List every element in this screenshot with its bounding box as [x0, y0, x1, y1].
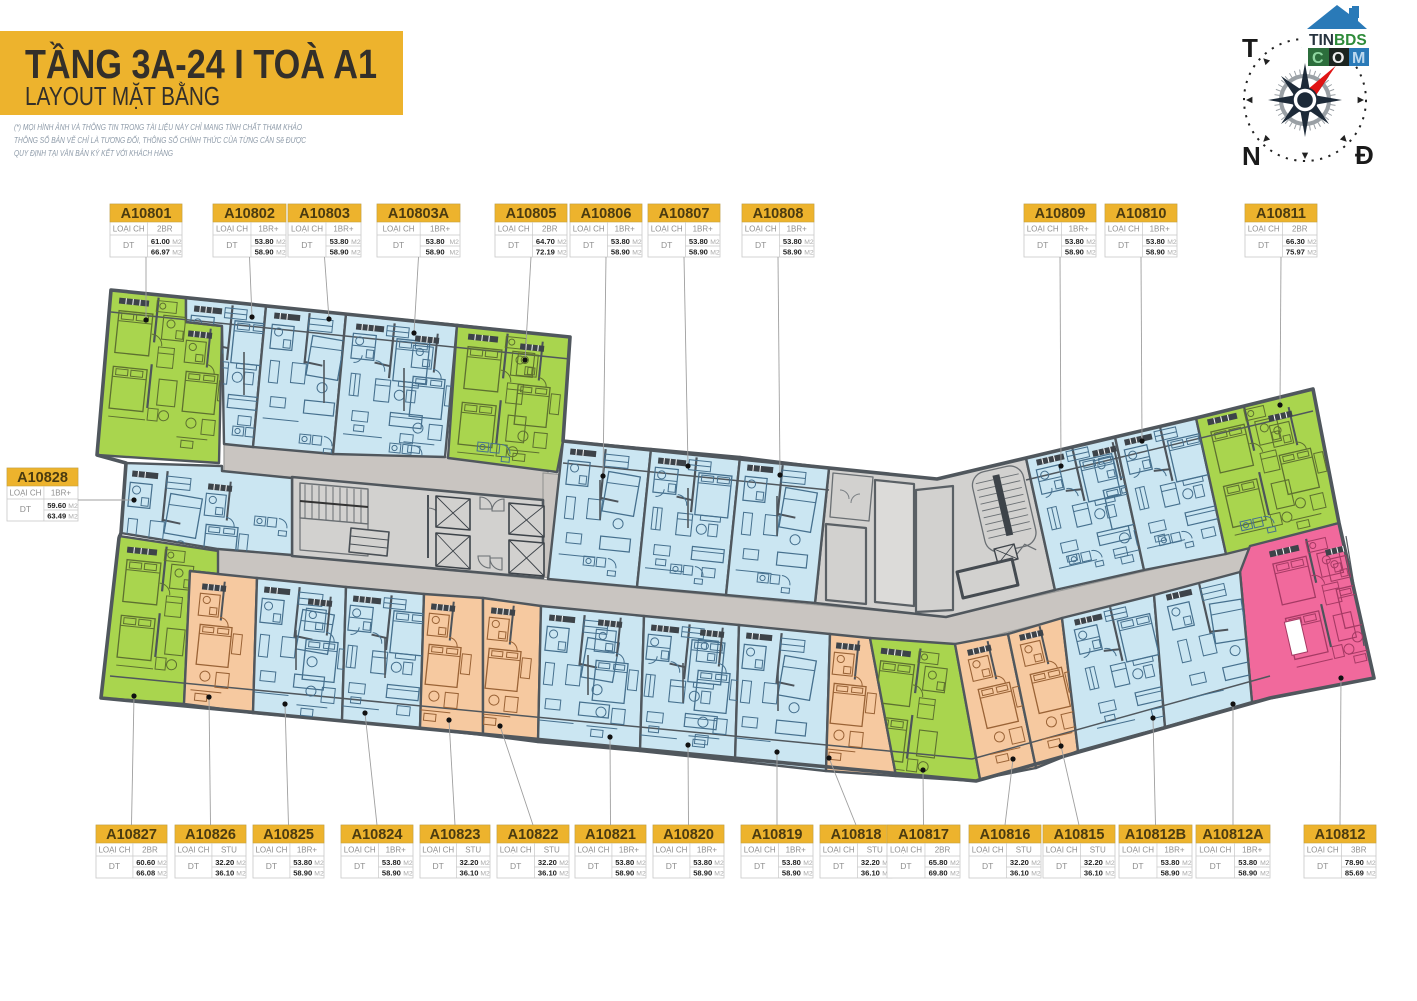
- svg-text:A10812: A10812: [1315, 827, 1366, 843]
- svg-text:53.80: 53.80: [1146, 237, 1165, 246]
- svg-text:64.70: 64.70: [536, 237, 555, 246]
- svg-text:DT: DT: [301, 240, 312, 250]
- svg-text:M2: M2: [632, 250, 642, 257]
- svg-text:32.20: 32.20: [1010, 858, 1029, 867]
- svg-text:DT: DT: [1056, 861, 1067, 871]
- svg-text:LOẠI CH: LOẠI CH: [500, 846, 532, 855]
- svg-text:58.90: 58.90: [330, 248, 349, 257]
- svg-text:1BR+: 1BR+: [258, 225, 279, 234]
- svg-text:M2: M2: [68, 503, 78, 510]
- svg-text:LOẠI CH: LOẠI CH: [113, 225, 145, 234]
- svg-text:53.80: 53.80: [689, 237, 708, 246]
- svg-text:M2: M2: [68, 514, 78, 521]
- svg-text:72.19: 72.19: [536, 248, 555, 257]
- svg-text:M2: M2: [559, 871, 569, 878]
- svg-text:75.97: 75.97: [1286, 248, 1305, 257]
- svg-text:32.20: 32.20: [1084, 858, 1103, 867]
- svg-text:M2: M2: [314, 860, 324, 867]
- svg-text:A10822: A10822: [508, 827, 559, 843]
- svg-text:63.49: 63.49: [47, 512, 66, 521]
- svg-text:M2: M2: [632, 239, 642, 246]
- svg-text:65.80: 65.80: [929, 858, 948, 867]
- svg-text:M2: M2: [1182, 860, 1192, 867]
- svg-text:LOẠI CH: LOẠI CH: [1046, 846, 1078, 855]
- svg-text:2BR: 2BR: [542, 225, 558, 234]
- svg-text:M2: M2: [803, 871, 813, 878]
- svg-text:THÔNG SỐ BẢN VẼ CHỈ LÀ TƯƠNG Đ: THÔNG SỐ BẢN VẼ CHỈ LÀ TƯƠNG ĐỐI, THÔNG …: [14, 136, 306, 145]
- svg-text:M2: M2: [1366, 871, 1376, 878]
- svg-text:(*) MỌI HÌNH ẢNH VÀ THÔNG TIN: (*) MỌI HÌNH ẢNH VÀ THÔNG TIN TRONG TÀI …: [14, 123, 302, 132]
- svg-text:DT: DT: [1132, 861, 1143, 871]
- svg-text:LOẠI CH: LOẠI CH: [823, 846, 855, 855]
- svg-text:A10828: A10828: [17, 470, 68, 486]
- svg-text:58.90: 58.90: [293, 869, 312, 878]
- svg-text:1BR+: 1BR+: [786, 846, 807, 855]
- svg-text:66.97: 66.97: [151, 248, 170, 257]
- svg-text:DT: DT: [982, 861, 993, 871]
- svg-text:58.90: 58.90: [1146, 248, 1165, 257]
- svg-text:M2: M2: [276, 239, 286, 246]
- svg-text:DT: DT: [1258, 240, 1269, 250]
- svg-text:M2: M2: [803, 860, 813, 867]
- svg-text:A10803: A10803: [299, 206, 350, 222]
- svg-text:DT: DT: [1317, 861, 1328, 871]
- svg-text:M2: M2: [714, 860, 724, 867]
- svg-text:M2: M2: [804, 239, 814, 246]
- svg-text:M2: M2: [1031, 871, 1041, 878]
- svg-text:DT: DT: [1210, 861, 1221, 871]
- svg-text:53.80: 53.80: [330, 237, 349, 246]
- svg-text:A10803A: A10803A: [388, 206, 450, 222]
- svg-text:M2: M2: [157, 860, 167, 867]
- svg-text:A10811: A10811: [1256, 206, 1306, 222]
- svg-text:53.80: 53.80: [1238, 858, 1257, 867]
- svg-text:1BR+: 1BR+: [1150, 225, 1171, 234]
- svg-text:LOẠI CH: LOẠI CH: [1248, 225, 1280, 234]
- svg-text:M2: M2: [714, 871, 724, 878]
- svg-text:DT: DT: [20, 504, 31, 514]
- svg-text:DT: DT: [508, 240, 519, 250]
- svg-text:A10809: A10809: [1035, 206, 1086, 222]
- svg-text:1BR+: 1BR+: [1164, 846, 1185, 855]
- svg-text:32.20: 32.20: [459, 858, 478, 867]
- svg-text:M2: M2: [172, 239, 182, 246]
- svg-text:LOẠI CH: LOẠI CH: [1108, 225, 1140, 234]
- svg-text:DT: DT: [188, 861, 199, 871]
- svg-text:M2: M2: [1167, 239, 1177, 246]
- svg-text:LOẠI CH: LOẠI CH: [9, 489, 41, 498]
- svg-text:78.90: 78.90: [1345, 858, 1364, 867]
- svg-text:DT: DT: [666, 861, 677, 871]
- svg-text:53.80: 53.80: [255, 237, 274, 246]
- svg-text:M2: M2: [157, 871, 167, 878]
- svg-text:53.80: 53.80: [783, 237, 802, 246]
- svg-text:36.10: 36.10: [538, 869, 557, 878]
- svg-text:53.80: 53.80: [1161, 858, 1180, 867]
- svg-text:A10816: A10816: [980, 827, 1031, 843]
- svg-text:53.80: 53.80: [693, 858, 712, 867]
- svg-text:66.08: 66.08: [136, 869, 155, 878]
- svg-text:58.90: 58.90: [426, 248, 445, 257]
- svg-text:A10819: A10819: [752, 827, 803, 843]
- svg-text:1BR+: 1BR+: [333, 225, 354, 234]
- svg-text:2BR: 2BR: [935, 846, 951, 855]
- svg-text:LOẠI CH: LOẠI CH: [1307, 846, 1339, 855]
- svg-text:36.10: 36.10: [215, 869, 234, 878]
- svg-text:STU: STU: [1016, 846, 1032, 855]
- svg-text:M2: M2: [1167, 250, 1177, 257]
- svg-text:M2: M2: [449, 239, 459, 246]
- svg-text:A10808: A10808: [753, 206, 804, 222]
- svg-text:A10812A: A10812A: [1202, 827, 1264, 843]
- svg-text:M2: M2: [950, 871, 960, 878]
- svg-text:M2: M2: [1105, 871, 1115, 878]
- svg-text:A10817: A10817: [898, 827, 949, 843]
- svg-text:STU: STU: [867, 846, 883, 855]
- svg-text:M2: M2: [1031, 860, 1041, 867]
- svg-text:LOẠI CH: LOẠI CH: [972, 846, 1004, 855]
- svg-text:M2: M2: [403, 860, 413, 867]
- svg-text:A10806: A10806: [581, 206, 632, 222]
- svg-text:2BR: 2BR: [1292, 225, 1308, 234]
- svg-text:58.90: 58.90: [255, 248, 274, 257]
- svg-text:M2: M2: [351, 250, 361, 257]
- svg-text:M2: M2: [1086, 250, 1096, 257]
- svg-text:A10805: A10805: [506, 206, 557, 222]
- svg-text:A10824: A10824: [352, 827, 403, 843]
- svg-text:53.80: 53.80: [382, 858, 401, 867]
- svg-text:M2: M2: [1307, 250, 1317, 257]
- svg-text:DT: DT: [755, 240, 766, 250]
- svg-text:LOẠI CH: LOẠI CH: [291, 225, 323, 234]
- svg-text:LOẠI CH: LOẠI CH: [177, 846, 209, 855]
- svg-text:53.80: 53.80: [611, 237, 630, 246]
- svg-text:M2: M2: [1182, 871, 1192, 878]
- svg-text:M: M: [1352, 50, 1365, 67]
- svg-text:LOẠI CH: LOẠI CH: [216, 225, 248, 234]
- svg-text:M2: M2: [1105, 860, 1115, 867]
- svg-text:M2: M2: [636, 871, 646, 878]
- svg-text:69.80: 69.80: [929, 869, 948, 878]
- svg-text:1BR+: 1BR+: [693, 225, 714, 234]
- svg-text:LOẠI CH: LOẠI CH: [651, 225, 683, 234]
- svg-text:53.80: 53.80: [293, 858, 312, 867]
- svg-text:DT: DT: [354, 861, 365, 871]
- svg-text:1BR+: 1BR+: [697, 846, 718, 855]
- svg-text:DT: DT: [588, 861, 599, 871]
- svg-text:M2: M2: [236, 871, 246, 878]
- svg-text:M2: M2: [1260, 871, 1270, 878]
- svg-text:M2: M2: [636, 860, 646, 867]
- svg-text:DT: DT: [900, 861, 911, 871]
- svg-text:A10821: A10821: [585, 827, 636, 843]
- svg-text:32.20: 32.20: [861, 858, 880, 867]
- svg-text:1BR+: 1BR+: [430, 225, 451, 234]
- svg-text:58.90: 58.90: [693, 869, 712, 878]
- svg-text:36.10: 36.10: [861, 869, 880, 878]
- svg-text:LOẠI CH: LOẠI CH: [1199, 846, 1231, 855]
- svg-text:DT: DT: [433, 861, 444, 871]
- svg-text:M2: M2: [1086, 239, 1096, 246]
- svg-text:A10827: A10827: [106, 827, 157, 843]
- svg-text:1BR+: 1BR+: [51, 489, 72, 498]
- svg-text:2BR: 2BR: [142, 846, 158, 855]
- svg-text:53.80: 53.80: [426, 237, 445, 246]
- svg-text:M2: M2: [276, 250, 286, 257]
- svg-text:1BR+: 1BR+: [787, 225, 808, 234]
- svg-text:LOẠI CH: LOẠI CH: [577, 846, 609, 855]
- svg-text:58.90: 58.90: [1161, 869, 1180, 878]
- svg-text:A10820: A10820: [663, 827, 714, 843]
- svg-text:1BR+: 1BR+: [619, 846, 640, 855]
- svg-text:32.20: 32.20: [215, 858, 234, 867]
- svg-text:M2: M2: [804, 250, 814, 257]
- svg-text:1BR+: 1BR+: [386, 846, 407, 855]
- svg-text:M2: M2: [403, 871, 413, 878]
- svg-text:LOẠI CH: LOẠI CH: [573, 225, 605, 234]
- svg-text:M2: M2: [172, 250, 182, 257]
- svg-text:58.90: 58.90: [1238, 869, 1257, 878]
- svg-text:N: N: [1242, 141, 1261, 171]
- svg-text:LAYOUT MẶT BẰNG: LAYOUT MẶT BẰNG: [25, 81, 220, 111]
- svg-text:M2: M2: [480, 860, 490, 867]
- svg-text:C: C: [1312, 50, 1324, 67]
- svg-text:M2: M2: [557, 239, 567, 246]
- svg-text:T: T: [1242, 33, 1258, 63]
- svg-text:LOẠI CH: LOẠI CH: [1027, 225, 1059, 234]
- svg-text:A10826: A10826: [185, 827, 236, 843]
- svg-text:A10810: A10810: [1116, 206, 1167, 222]
- svg-text:LOẠI CH: LOẠI CH: [498, 225, 530, 234]
- svg-text:DT: DT: [583, 240, 594, 250]
- svg-text:LOẠI CH: LOẠI CH: [383, 225, 415, 234]
- svg-text:STU: STU: [221, 846, 237, 855]
- svg-text:1BR+: 1BR+: [1242, 846, 1263, 855]
- svg-text:M2: M2: [1260, 860, 1270, 867]
- svg-text:A10825: A10825: [263, 827, 314, 843]
- svg-text:A10802: A10802: [224, 206, 275, 222]
- svg-text:36.10: 36.10: [1010, 869, 1029, 878]
- svg-text:STU: STU: [544, 846, 560, 855]
- svg-text:DT: DT: [226, 240, 237, 250]
- svg-text:LOẠI CH: LOẠI CH: [890, 846, 922, 855]
- svg-text:M2: M2: [480, 871, 490, 878]
- svg-text:M2: M2: [449, 250, 459, 257]
- svg-text:58.90: 58.90: [611, 248, 630, 257]
- svg-text:STU: STU: [465, 846, 481, 855]
- svg-text:58.90: 58.90: [782, 869, 801, 878]
- svg-text:DT: DT: [510, 861, 521, 871]
- svg-text:60.60: 60.60: [136, 858, 155, 867]
- svg-text:M2: M2: [557, 250, 567, 257]
- svg-text:M2: M2: [1307, 239, 1317, 246]
- svg-text:LOẠI CH: LOẠI CH: [344, 846, 376, 855]
- svg-text:M2: M2: [559, 860, 569, 867]
- svg-text:66.30: 66.30: [1286, 237, 1305, 246]
- svg-text:M2: M2: [950, 860, 960, 867]
- svg-text:58.90: 58.90: [382, 869, 401, 878]
- svg-text:58.90: 58.90: [1065, 248, 1084, 257]
- svg-text:LOẠI CH: LOẠI CH: [744, 846, 776, 855]
- svg-text:LOẠI CH: LOẠI CH: [1122, 846, 1154, 855]
- svg-text:A10812B: A10812B: [1125, 827, 1186, 843]
- svg-text:M2: M2: [710, 239, 720, 246]
- svg-text:DT: DT: [1037, 240, 1048, 250]
- svg-text:59.60: 59.60: [47, 501, 66, 510]
- svg-text:53.80: 53.80: [1065, 237, 1084, 246]
- svg-text:53.80: 53.80: [615, 858, 634, 867]
- svg-text:53.80: 53.80: [782, 858, 801, 867]
- svg-text:A10818: A10818: [831, 827, 882, 843]
- svg-text:DT: DT: [123, 240, 134, 250]
- svg-text:DT: DT: [754, 861, 765, 871]
- svg-text:LOẠI CH: LOẠI CH: [655, 846, 687, 855]
- svg-text:M2: M2: [1366, 860, 1376, 867]
- svg-text:A10823: A10823: [430, 827, 481, 843]
- svg-text:DT: DT: [1118, 240, 1129, 250]
- svg-text:TINBDS: TINBDS: [1309, 32, 1367, 49]
- svg-text:QUY ĐỊNH TẠI VĂN BẢN KÝ KẾT VỚ: QUY ĐỊNH TẠI VĂN BẢN KÝ KẾT VỚI KHÁCH HÀ…: [14, 149, 173, 158]
- svg-text:DT: DT: [393, 240, 404, 250]
- svg-text:LOẠI CH: LOẠI CH: [98, 846, 130, 855]
- svg-text:A10815: A10815: [1054, 827, 1105, 843]
- svg-text:M2: M2: [314, 871, 324, 878]
- svg-text:A10801: A10801: [121, 206, 172, 222]
- svg-text:1BR+: 1BR+: [297, 846, 318, 855]
- svg-text:LOẠI CH: LOẠI CH: [422, 846, 454, 855]
- svg-text:STU: STU: [1090, 846, 1106, 855]
- svg-text:M2: M2: [710, 250, 720, 257]
- svg-text:DT: DT: [661, 240, 672, 250]
- svg-text:M2: M2: [351, 239, 361, 246]
- svg-text:58.90: 58.90: [615, 869, 634, 878]
- svg-text:O: O: [1332, 50, 1344, 67]
- svg-text:2BR: 2BR: [157, 225, 173, 234]
- svg-text:36.10: 36.10: [459, 869, 478, 878]
- svg-text:DT: DT: [109, 861, 120, 871]
- svg-text:LOẠI CH: LOẠI CH: [255, 846, 287, 855]
- svg-text:DT: DT: [266, 861, 277, 871]
- svg-text:DT: DT: [833, 861, 844, 871]
- svg-text:1BR+: 1BR+: [615, 225, 636, 234]
- svg-text:61.00: 61.00: [151, 237, 170, 246]
- svg-text:3BR: 3BR: [1351, 846, 1367, 855]
- svg-text:Đ: Đ: [1355, 140, 1374, 170]
- svg-text:36.10: 36.10: [1084, 869, 1103, 878]
- svg-text:58.90: 58.90: [689, 248, 708, 257]
- svg-text:A10807: A10807: [659, 206, 710, 222]
- svg-text:32.20: 32.20: [538, 858, 557, 867]
- svg-text:58.90: 58.90: [783, 248, 802, 257]
- svg-text:1BR+: 1BR+: [1069, 225, 1090, 234]
- svg-text:LOẠI CH: LOẠI CH: [745, 225, 777, 234]
- svg-text:85.69: 85.69: [1345, 869, 1364, 878]
- svg-text:M2: M2: [236, 860, 246, 867]
